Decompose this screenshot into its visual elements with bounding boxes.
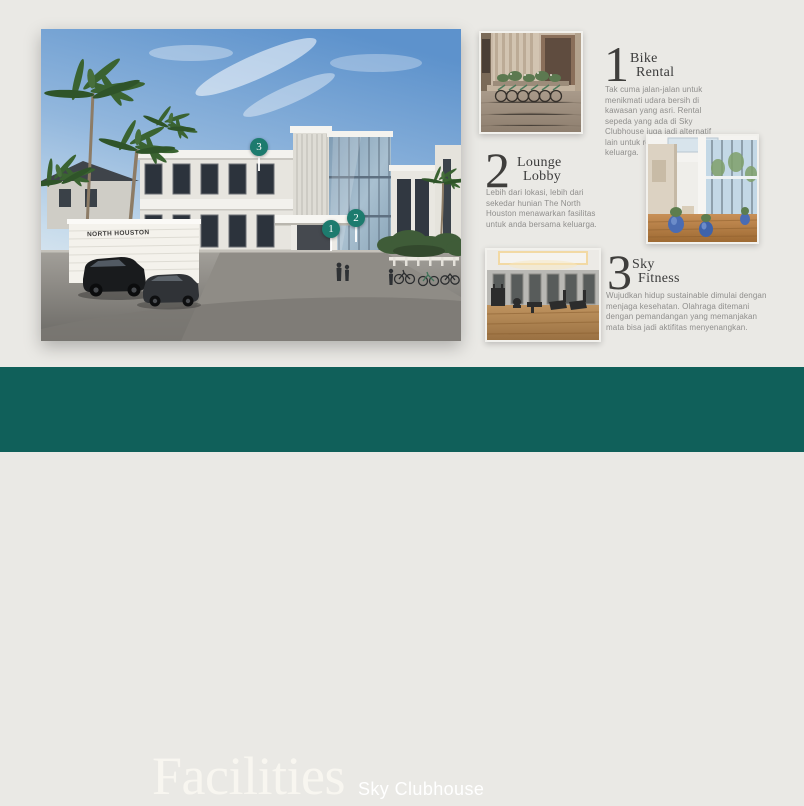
facility-title-2-line1: Lounge bbox=[517, 155, 562, 170]
facility-number-3: 3 bbox=[607, 252, 632, 292]
facility-title-3-line2: Fitness bbox=[638, 272, 680, 286]
page-subtitle: Sky Clubhouse bbox=[358, 779, 484, 800]
facilities-slide: NORTH HOUSTON 1 2 3 bbox=[0, 0, 804, 452]
facility-title-2-line2: Lobby bbox=[523, 170, 562, 184]
facility-thumb-sky-fitness bbox=[485, 248, 601, 342]
facility-title-3-line1: Sky bbox=[632, 257, 655, 272]
facility-thumb-bike-rental bbox=[479, 31, 583, 134]
marker-3-leader-line bbox=[258, 155, 260, 171]
marker-1-leader-line bbox=[330, 237, 332, 251]
marker-2: 2 bbox=[347, 209, 365, 227]
clubhouse-render: NORTH HOUSTON 1 2 3 bbox=[41, 29, 461, 341]
clubhouse-render-illustration bbox=[41, 29, 461, 341]
facility-number-2: 2 bbox=[485, 150, 510, 190]
facility-title-3: Sky Fitness bbox=[632, 258, 680, 287]
footer-banner: Facilities Sky Clubhouse bbox=[0, 367, 804, 452]
facility-thumb-lounge-lobby bbox=[646, 134, 759, 244]
facility-number-1: 1 bbox=[604, 44, 629, 84]
marker-1: 1 bbox=[322, 220, 340, 238]
facility-title-2: Lounge Lobby bbox=[517, 156, 562, 185]
page-title: Facilities bbox=[152, 752, 345, 801]
marker-2-leader-line bbox=[355, 226, 357, 242]
facility-title-1: Bike Rental bbox=[630, 52, 674, 81]
marker-3: 3 bbox=[250, 138, 268, 156]
facility-title-1-line1: Bike bbox=[630, 51, 658, 66]
facility-description-2: Lebih dari lokasi, lebih dari sekedar hu… bbox=[486, 188, 608, 230]
facility-description-3: Wujudkan hidup sustainable dimulai denga… bbox=[606, 291, 770, 333]
facility-title-1-line2: Rental bbox=[636, 66, 674, 80]
